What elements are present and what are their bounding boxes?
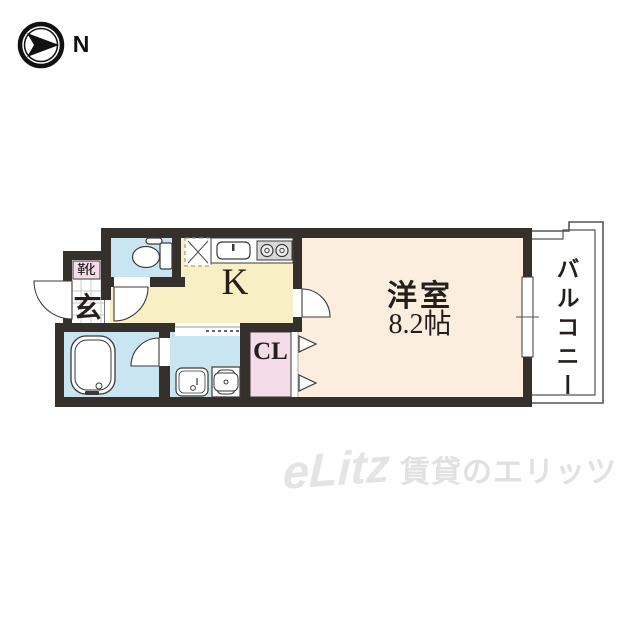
washing-machine-pan-icon xyxy=(212,367,240,397)
watermark-brand-text: 賃貸のエリッツ xyxy=(400,447,617,491)
floorplan-image: N K 洋室 8.2帖 CL バルコニー 玄 靴 eLitz 賃貸のエリッツ xyxy=(0,0,640,640)
watermark-logo: eLitz xyxy=(282,437,391,500)
washbasin-icon xyxy=(176,368,208,396)
balcony-label: バルコニー xyxy=(548,247,582,412)
western-room-size: 8.2帖 xyxy=(345,302,495,342)
compass-icon xyxy=(20,24,62,66)
kitchen-label: K xyxy=(205,261,265,304)
compass-north-label: N xyxy=(66,31,96,58)
entrance-door xyxy=(34,281,72,319)
shoe-cabinet-label: 靴 xyxy=(63,261,111,279)
bathtub-icon xyxy=(71,336,115,395)
kitchen-counter xyxy=(211,238,293,263)
watermark: eLitz 賃貸のエリッツ xyxy=(283,441,617,496)
entrance-label: 玄 xyxy=(71,286,104,326)
closet-label: CL xyxy=(251,337,290,366)
washroom-doorway xyxy=(175,323,240,336)
